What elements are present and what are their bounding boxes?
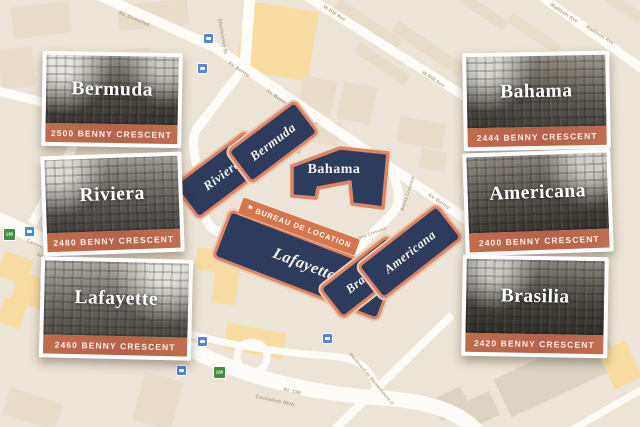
address-banner: 2444 BENNY CRESCENT: [467, 126, 606, 147]
address-banner: 2500 BENNY CRESCENT: [45, 123, 177, 144]
building-photo: Riviera: [44, 156, 179, 234]
route-shield-icon: 138: [3, 228, 16, 241]
address-label: 2420 BENNY CRESCENT: [474, 337, 595, 349]
building-photo: Brasilia: [466, 259, 605, 335]
bus-stop-icon[interactable]: [322, 333, 333, 344]
footprint-bahama-shape: [286, 144, 394, 216]
building-card-brasilia[interactable]: Brasilia 2420 BENNY CRESCENT: [461, 255, 609, 359]
building-name: Americana: [489, 180, 586, 205]
address-label: 2460 BENNY CRESCENT: [55, 339, 176, 352]
road: [568, 386, 640, 427]
building-name: Bahama: [500, 80, 573, 103]
footprint-bahama[interactable]: Bahama: [286, 144, 394, 216]
building-name: Brasilia: [500, 285, 569, 308]
building-card-riviera[interactable]: Riviera 2480 BENNY CRESCENT: [40, 152, 184, 257]
bus-stop-icon[interactable]: [197, 63, 208, 74]
route-shield-number: 138: [6, 232, 13, 237]
building-card-americana[interactable]: Americana 2400 BENNY CRESCENT: [462, 148, 614, 256]
bus-stop-icon[interactable]: [203, 33, 214, 44]
route-shield-icon: 138: [213, 366, 226, 379]
footprint-label: Bahama: [294, 162, 374, 178]
road: [245, 0, 250, 64]
address-banner: 2460 BENNY CRESCENT: [43, 334, 187, 356]
bus-stop-icon[interactable]: [24, 226, 35, 237]
route-shield-number: 138: [216, 370, 223, 375]
building-name: Bermuda: [71, 78, 153, 101]
building-name: Lafayette: [74, 287, 158, 311]
address-label: 2480 BENNY CRESCENT: [53, 233, 174, 247]
building-photo: Americana: [466, 153, 609, 234]
address-label: 2500 BENNY CRESCENT: [51, 127, 172, 139]
building-card-bahama[interactable]: Bahama 2444 BENNY CRESCENT: [462, 51, 611, 152]
building-photo: Bahama: [466, 55, 606, 128]
building-name: Riviera: [79, 182, 145, 206]
bus-stop-icon[interactable]: [197, 336, 208, 347]
flag-icon: ⚑: [246, 204, 254, 213]
address-banner: 2420 BENNY CRESCENT: [465, 333, 603, 354]
road: [96, 0, 214, 47]
map-background[interactable]: Av. Somerled Sherbrooke St Av. Benny Av.…: [0, 0, 640, 427]
address-label: 2444 BENNY CRESCENT: [477, 130, 598, 142]
bus-stop-icon[interactable]: [176, 365, 187, 376]
building-card-bermuda[interactable]: Bermuda 2500 BENNY CRESCENT: [41, 51, 183, 148]
building-photo: Lafayette: [43, 260, 189, 337]
building-card-lafayette[interactable]: Lafayette 2460 BENNY CRESCENT: [39, 256, 193, 360]
building-photo: Bermuda: [46, 55, 179, 125]
address-label: 2400 BENNY CRESCENT: [479, 233, 600, 247]
